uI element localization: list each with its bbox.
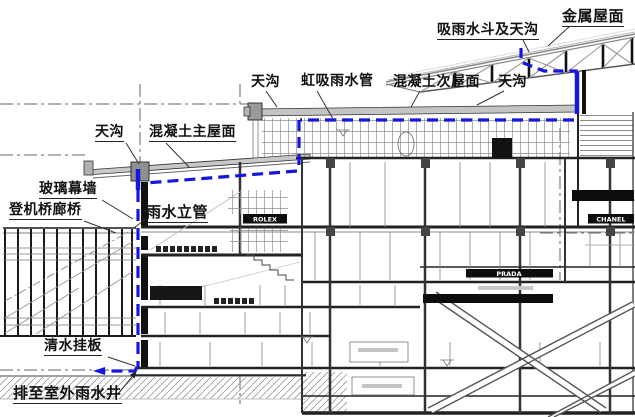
- label-glass-curtain-wall: 玻璃幕墙: [39, 182, 97, 199]
- label-fairface-panel: 清水挂板: [44, 339, 102, 356]
- metal-roof-truss: [386, 29, 635, 114]
- label-rain-riser: 雨水立管: [146, 204, 208, 223]
- label-concrete-main-roof: 混凝土主屋面: [149, 125, 236, 142]
- shop-sign-chanel: CHANEL: [596, 216, 625, 224]
- label-metal-roof: 金属屋面: [562, 8, 624, 27]
- label-drain-to-outdoor-well: 排至室外雨水井: [13, 385, 122, 404]
- label-rain-hopper-gutter: 吸雨水斗及天沟: [437, 23, 539, 40]
- pipe-flow-arrow: [93, 367, 105, 375]
- label-gutter-top-right: 天沟: [498, 75, 527, 91]
- section-drawing: ROLEX PRADA CHANEL: [0, 0, 635, 417]
- glass-curtain-wall-block: [0, 228, 136, 336]
- display-board: [150, 286, 202, 300]
- label-boarding-bridge: 登机桥廊桥: [9, 203, 82, 220]
- label-gutter-left: 天沟: [95, 125, 124, 142]
- shop-sign-prada: PRADA: [496, 270, 521, 278]
- label-siphonic-rain-pipe: 虹吸雨水管: [301, 74, 374, 90]
- interior-details: [150, 132, 635, 395]
- concrete-main-roof-shape: [84, 154, 310, 181]
- escalators: [423, 190, 635, 417]
- shop-sign-rolex: ROLEX: [253, 216, 277, 224]
- elevation-marks: [300, 130, 454, 366]
- escalator-landing-band: [423, 294, 553, 303]
- label-concrete-secondary-roof: 混凝土次屋面: [393, 75, 480, 91]
- label-gutter-top-left: 天沟: [251, 75, 280, 91]
